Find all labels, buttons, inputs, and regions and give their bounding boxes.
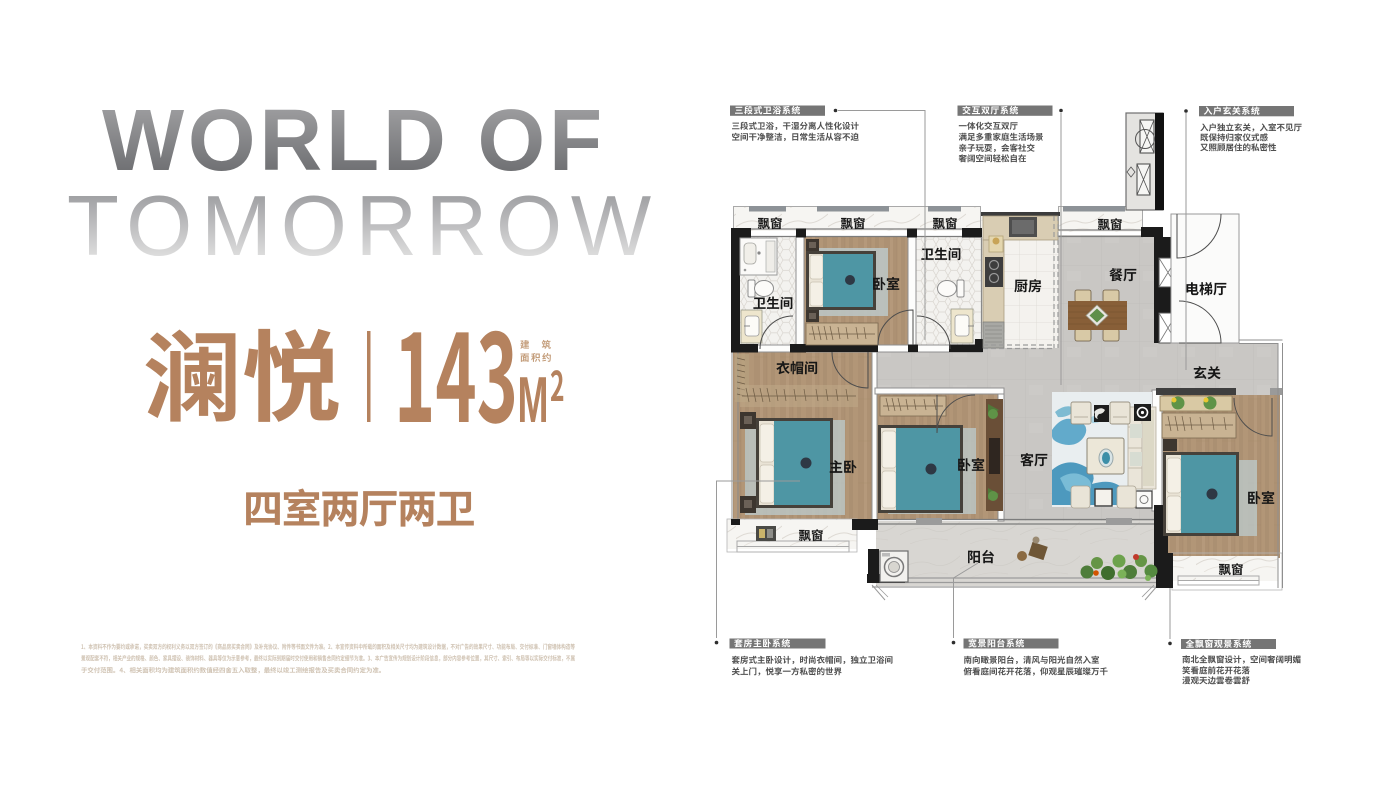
svg-text:套房主卧系统: 套房主卧系统: [734, 637, 791, 650]
svg-text:俯看庭间花开花落，仰观星辰璀璨万千: 俯看庭间花开花落，仰观星辰璀璨万千: [964, 665, 1109, 677]
svg-text:卧室: 卧室: [872, 274, 900, 294]
svg-text:主卧: 主卧: [829, 457, 857, 477]
svg-text:厨房: 厨房: [1014, 276, 1042, 296]
svg-text:建筑: 建筑: [520, 337, 563, 351]
svg-text:澜悦: 澜悦: [143, 298, 341, 442]
svg-text:漫观天边雲卷雲舒: 漫观天边雲卷雲舒: [1182, 674, 1251, 686]
svg-text:套房式主卧设计，时尚衣帽间，独立卫浴间: 套房式主卧设计，时尚衣帽间，独立卫浴间: [732, 654, 894, 666]
svg-text:奢阔空间轻松自在: 奢阔空间轻松自在: [959, 153, 1028, 165]
svg-text:餐厅: 餐厅: [1109, 265, 1137, 285]
svg-text:南向瞰景阳台，清风与阳光自然入室: 南向瞰景阳台，清风与阳光自然入室: [964, 654, 1101, 666]
svg-text:飘窗: 飘窗: [840, 213, 865, 232]
svg-text:玄关: 玄关: [1193, 363, 1221, 383]
svg-text:面积约: 面积约: [520, 350, 553, 364]
svg-text:客厅: 客厅: [1020, 450, 1048, 470]
svg-text:交互双厅系统: 交互双厅系统: [962, 104, 1019, 117]
svg-text:衣帽间: 衣帽间: [776, 358, 818, 378]
svg-text:空间干净整洁，日常生活从容不迫: 空间干净整洁，日常生活从容不迫: [732, 131, 860, 143]
svg-text:入户玄关系统: 入户玄关系统: [1204, 104, 1261, 117]
svg-text:又照顾居住的私密性: 又照顾居住的私密性: [1200, 141, 1277, 153]
svg-text:关上门，悦享一方私密的世界: 关上门，悦享一方私密的世界: [732, 665, 843, 677]
svg-text:1、本资料不作为要约或承诺，买卖双方的权利义务以双方签订的《: 1、本资料不作为要约或承诺，买卖双方的权利义务以双方签订的《商品房买卖合同》及补…: [81, 642, 575, 651]
svg-text:全飘窗观景系统: 全飘窗观景系统: [1186, 637, 1252, 650]
svg-text:景观配套不符，相关产业的规格、颜色、家具摆设、装饰材料、器具: 景观配套不符，相关产业的规格、颜色、家具摆设、装饰材料、器具等仅为示意参考，最终…: [81, 654, 575, 663]
svg-text:卧室: 卧室: [957, 455, 985, 475]
svg-text:飘窗: 飘窗: [1097, 214, 1122, 233]
svg-text:143: 143: [394, 282, 518, 457]
svg-text:卧室: 卧室: [1247, 488, 1275, 508]
svg-text:飘窗: 飘窗: [932, 213, 957, 232]
svg-text:飘窗: 飘窗: [1218, 559, 1243, 578]
svg-text:TOMORROW: TOMORROW: [67, 157, 660, 280]
svg-text:电梯厅: 电梯厅: [1185, 279, 1227, 299]
svg-text:飘窗: 飘窗: [757, 213, 782, 232]
svg-text:四室两厅两卫: 四室两厅两卫: [243, 477, 474, 535]
svg-text:于交付范围。4、相关面积均为建筑面积约数值经四舍五入取整，最: 于交付范围。4、相关面积均为建筑面积约数值经四舍五入取整，最终以竣工测绘报告及买…: [81, 665, 385, 674]
svg-text:飘窗: 飘窗: [798, 525, 823, 544]
svg-text:宽景阳台系统: 宽景阳台系统: [968, 637, 1025, 650]
svg-text:卫生间: 卫生间: [921, 243, 962, 263]
svg-text:阳台: 阳台: [967, 547, 995, 567]
svg-text:三段式卫浴系统: 三段式卫浴系统: [735, 104, 801, 117]
svg-text:卫生间: 卫生间: [753, 292, 794, 312]
